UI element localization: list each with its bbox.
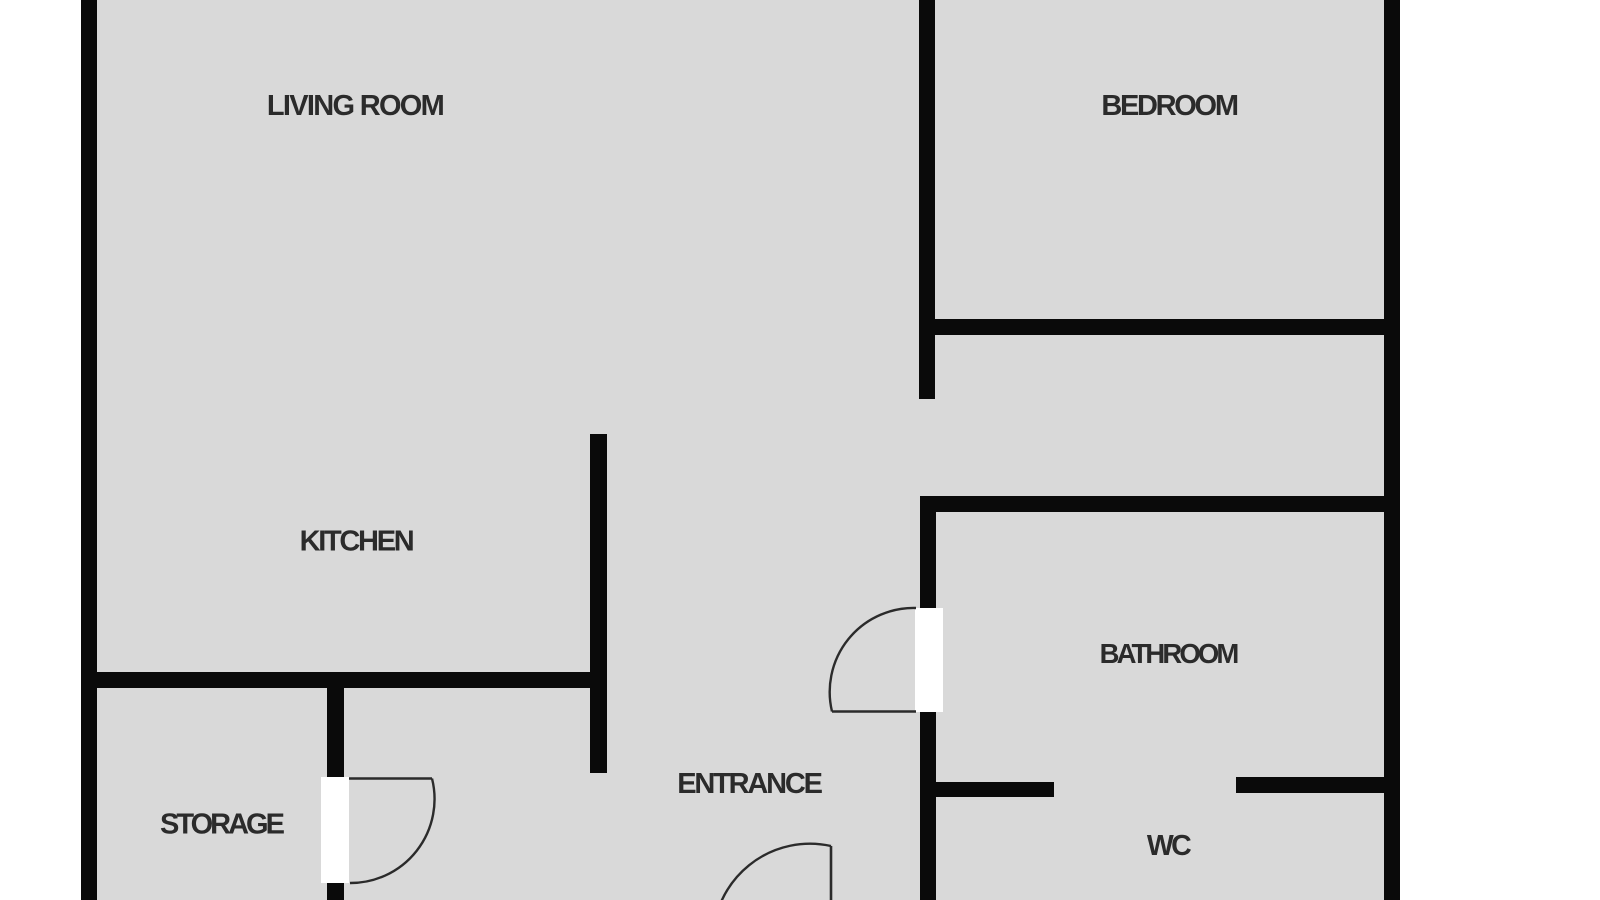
svg-text:ENTRANCE: ENTRANCE	[677, 768, 822, 800]
svg-text:BEDROOM: BEDROOM	[1101, 90, 1237, 122]
svg-text:KITCHEN: KITCHEN	[300, 526, 413, 558]
svg-text:STORAGE: STORAGE	[160, 808, 285, 840]
svg-text:BATHROOM: BATHROOM	[1100, 638, 1239, 669]
svg-text:LIVING ROOM: LIVING ROOM	[267, 90, 444, 122]
svg-text:WC: WC	[1147, 830, 1191, 862]
